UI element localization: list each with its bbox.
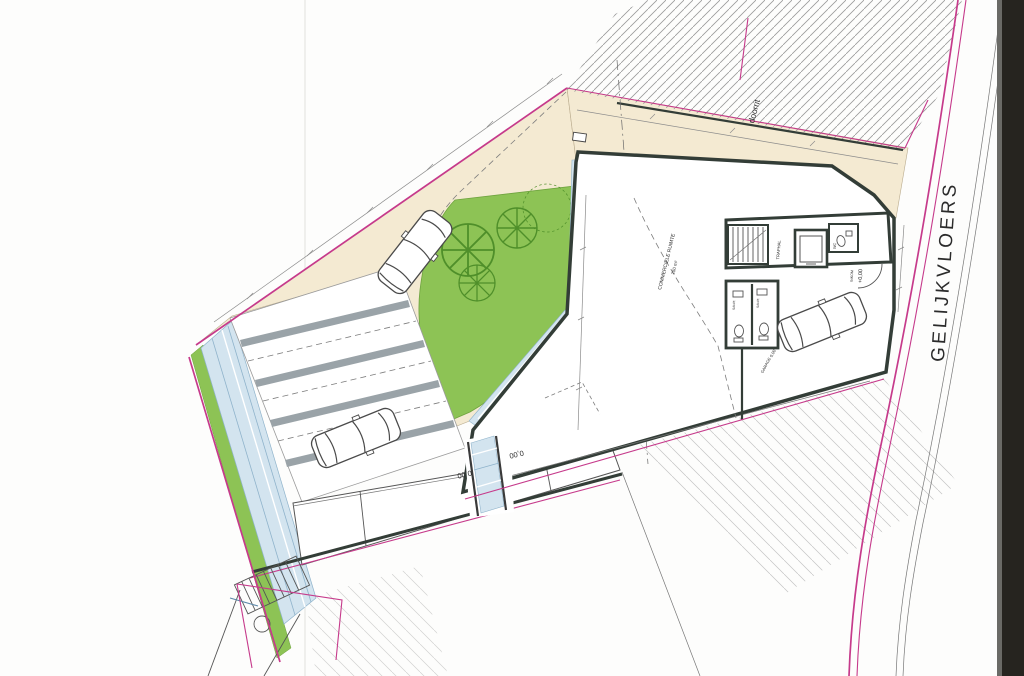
- wc-label: WC: [833, 242, 838, 249]
- scan-edge-shadow: [997, 0, 1002, 676]
- entrance-label: INKOM: [850, 270, 854, 282]
- level-marker: +0,00: [858, 269, 864, 283]
- sanitary-label: SANIT.: [732, 300, 736, 310]
- sanitary-label: SANIT.: [756, 298, 760, 308]
- staircase-icon: [728, 225, 768, 264]
- gate-post: [573, 132, 587, 142]
- sanitary-block: [726, 281, 778, 348]
- scanned-plan-page: GELIJKVLOERS doorrit COMMERCIËLE RUIMTE …: [0, 0, 1024, 676]
- tree-icon: [497, 208, 537, 248]
- ground-floor-site-plan: GELIJKVLOERS doorrit COMMERCIËLE RUIMTE …: [0, 0, 1024, 676]
- scan-edge: [1002, 0, 1024, 676]
- elevator-icon: [795, 230, 827, 267]
- tree-icon: [459, 265, 495, 301]
